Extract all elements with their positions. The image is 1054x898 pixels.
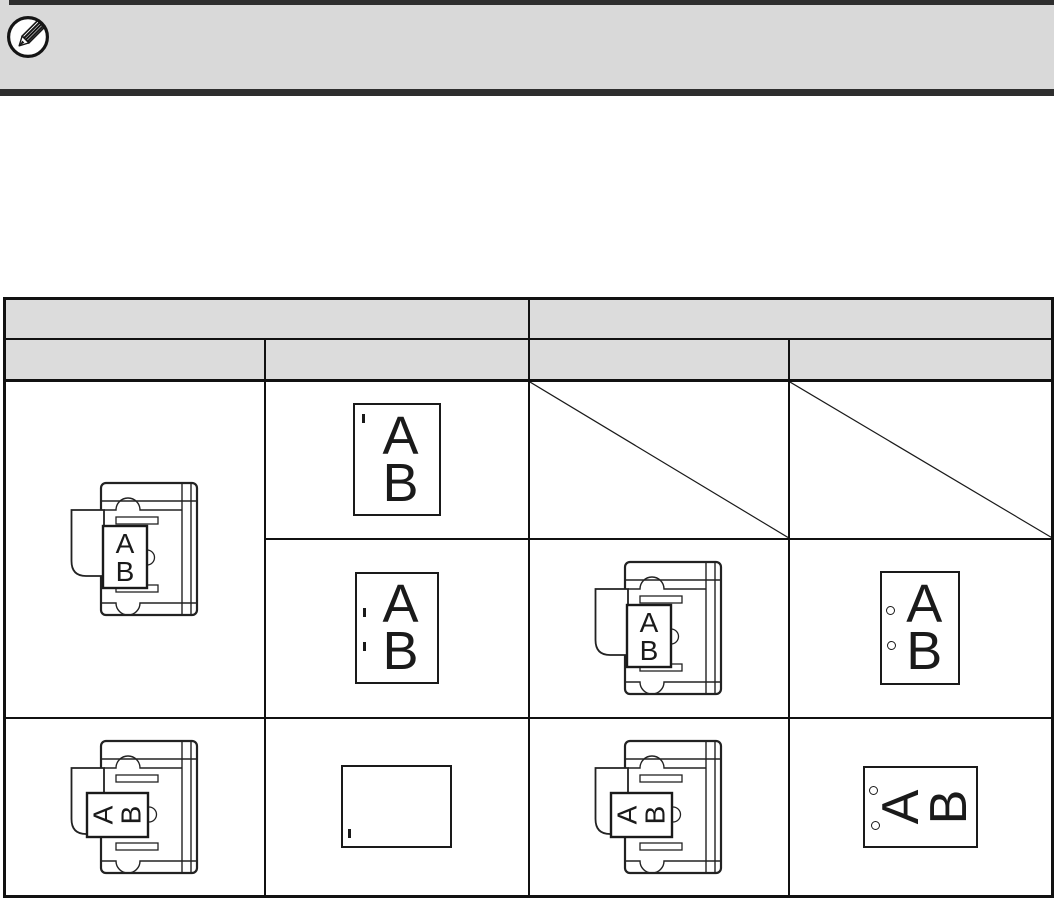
cell-output-two-punch-holes-left: A B — [789, 539, 1053, 718]
diagonal-na-line — [530, 382, 788, 538]
note-banner — [0, 0, 1054, 96]
cell-not-available-1 — [529, 381, 789, 539]
original-letter-a: A — [611, 805, 642, 824]
banner-bottom-rule — [0, 89, 1054, 96]
original-letter-a: A — [87, 805, 118, 824]
original-letter-a: A — [639, 607, 658, 638]
staple-mark — [348, 829, 351, 838]
page-letters-rotated: A B — [865, 768, 976, 846]
header-col1 — [5, 339, 265, 381]
output-page-two-staples: A B — [355, 572, 439, 684]
original-letter-b: B — [639, 805, 670, 824]
cell-original-rotated-2: A B — [529, 718, 789, 897]
page-letters: A B — [882, 573, 958, 683]
document-feeder-portrait-illustration: A B — [70, 481, 200, 617]
document-feeder-portrait-illustration: A B — [594, 560, 724, 696]
cell-output-one-staple-bottom-left — [265, 718, 529, 897]
output-page-two-holes: A B — [880, 571, 960, 685]
header-col4 — [789, 339, 1053, 381]
table-header-column-row — [5, 339, 1053, 381]
page-letter-a: A — [880, 788, 922, 826]
original-letter-a: A — [115, 528, 134, 559]
cell-original-portrait-2: A B — [529, 539, 789, 718]
original-letter-b: B — [639, 635, 658, 666]
output-page-landscape-one-staple — [341, 765, 452, 848]
original-letter-b: B — [115, 556, 134, 587]
original-letter-b: B — [115, 805, 146, 824]
cell-output-two-staples-left: A B — [265, 539, 529, 718]
cell-original-rotated-1: A B — [5, 718, 265, 897]
cell-not-available-2 — [789, 381, 1053, 539]
page-letter-b: B — [928, 788, 970, 826]
table-body-row-1a: A B A B — [5, 381, 1053, 539]
header-group-right — [529, 299, 1053, 339]
document-feeder-rotated-illustration: A B — [594, 739, 724, 875]
output-page-rotated-two-holes: A B — [863, 766, 978, 848]
header-group-left — [5, 299, 529, 339]
page-letter-b: B — [382, 628, 418, 675]
page-letters: A B — [355, 405, 439, 514]
page-letters: A B — [357, 574, 437, 682]
orientation-table: A B A B — [3, 297, 1054, 898]
banner-top-rule — [9, 0, 1054, 5]
table-body-row-2: A B — [5, 718, 1053, 897]
pencil-note-icon — [6, 15, 50, 59]
document-feeder-rotated-illustration: A B — [70, 739, 200, 875]
table-header-group-row — [5, 299, 1053, 339]
output-page-one-staple: A B — [353, 403, 441, 516]
page-letter-b: B — [382, 460, 418, 507]
page-letter-b: B — [906, 628, 942, 675]
diagonal-na-line — [790, 382, 1052, 538]
cell-output-rotated-two-punch-holes: A B — [789, 718, 1053, 897]
cell-output-one-staple-top-left: A B — [265, 381, 529, 539]
header-col2 — [265, 339, 529, 381]
cell-original-portrait-1: A B — [5, 381, 265, 718]
header-col3 — [529, 339, 789, 381]
